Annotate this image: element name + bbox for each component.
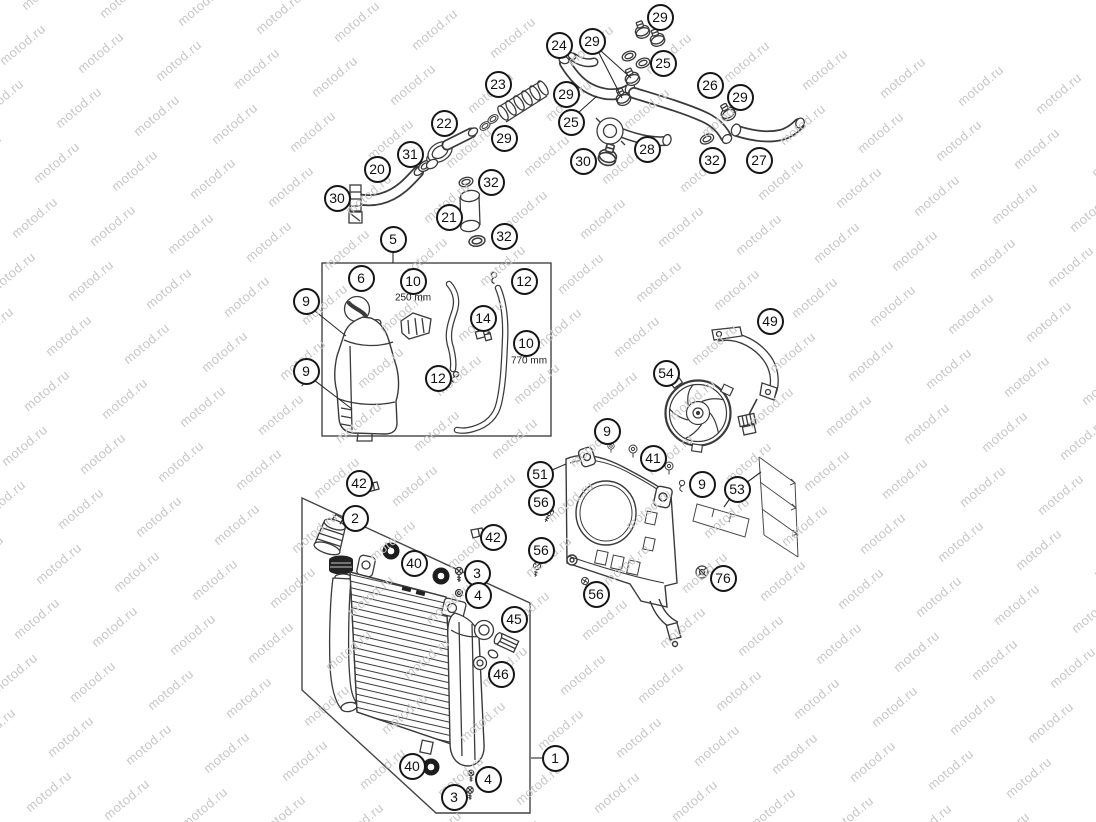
callout-42: 42 bbox=[346, 470, 373, 497]
callout-25: 25 bbox=[650, 50, 677, 77]
callout-12: 12 bbox=[511, 268, 538, 295]
callout-56: 56 bbox=[583, 581, 610, 608]
callout-29: 29 bbox=[579, 28, 606, 55]
callout-46: 46 bbox=[488, 661, 515, 688]
callout-3: 3 bbox=[441, 784, 468, 811]
callout-29: 29 bbox=[647, 4, 674, 31]
callout-4: 4 bbox=[465, 582, 492, 609]
dimension-label: 250 mm bbox=[395, 293, 431, 304]
callout-2: 2 bbox=[342, 505, 369, 532]
callout-29: 29 bbox=[553, 81, 580, 108]
dimension-label: 770 mm bbox=[511, 356, 547, 367]
callout-4: 4 bbox=[475, 766, 502, 793]
callout-32: 32 bbox=[699, 147, 726, 174]
callout-9: 9 bbox=[293, 288, 320, 315]
callout-10: 10 bbox=[513, 330, 540, 357]
callout-layer: 2924292523262929252229312830322720323021… bbox=[0, 0, 1096, 822]
callout-9: 9 bbox=[293, 358, 320, 385]
callout-24: 24 bbox=[546, 32, 573, 59]
callout-22: 22 bbox=[431, 110, 458, 137]
callout-28: 28 bbox=[634, 136, 661, 163]
callout-10: 10 bbox=[400, 268, 427, 295]
callout-53: 53 bbox=[724, 476, 751, 503]
callout-12: 12 bbox=[425, 365, 452, 392]
callout-41: 41 bbox=[640, 445, 667, 472]
callout-45: 45 bbox=[501, 606, 528, 633]
callout-32: 32 bbox=[478, 169, 505, 196]
callout-76: 76 bbox=[710, 565, 737, 592]
callout-25: 25 bbox=[558, 109, 585, 136]
callout-6: 6 bbox=[348, 265, 375, 292]
callout-21: 21 bbox=[436, 204, 463, 231]
callout-49: 49 bbox=[757, 308, 784, 335]
callout-29: 29 bbox=[491, 125, 518, 152]
callout-29: 29 bbox=[727, 84, 754, 111]
callout-27: 27 bbox=[746, 147, 773, 174]
callout-31: 31 bbox=[397, 141, 424, 168]
callout-5: 5 bbox=[380, 226, 407, 253]
callout-56: 56 bbox=[528, 489, 555, 516]
callout-42: 42 bbox=[480, 524, 507, 551]
callout-1: 1 bbox=[542, 745, 569, 772]
callout-32: 32 bbox=[491, 223, 518, 250]
callout-40: 40 bbox=[399, 753, 426, 780]
callout-40: 40 bbox=[401, 550, 428, 577]
callout-56: 56 bbox=[528, 537, 555, 564]
callout-51: 51 bbox=[527, 461, 554, 488]
callout-30: 30 bbox=[570, 148, 597, 175]
callout-23: 23 bbox=[485, 71, 512, 98]
callout-9: 9 bbox=[594, 418, 621, 445]
callout-30: 30 bbox=[324, 185, 351, 212]
callout-14: 14 bbox=[470, 305, 497, 332]
parts-diagram-page: motod.rumotod.rumotod.rumotod.rumotod.ru… bbox=[0, 0, 1096, 822]
callout-26: 26 bbox=[697, 72, 724, 99]
callout-20: 20 bbox=[364, 156, 391, 183]
callout-9: 9 bbox=[689, 471, 716, 498]
callout-54: 54 bbox=[653, 360, 680, 387]
